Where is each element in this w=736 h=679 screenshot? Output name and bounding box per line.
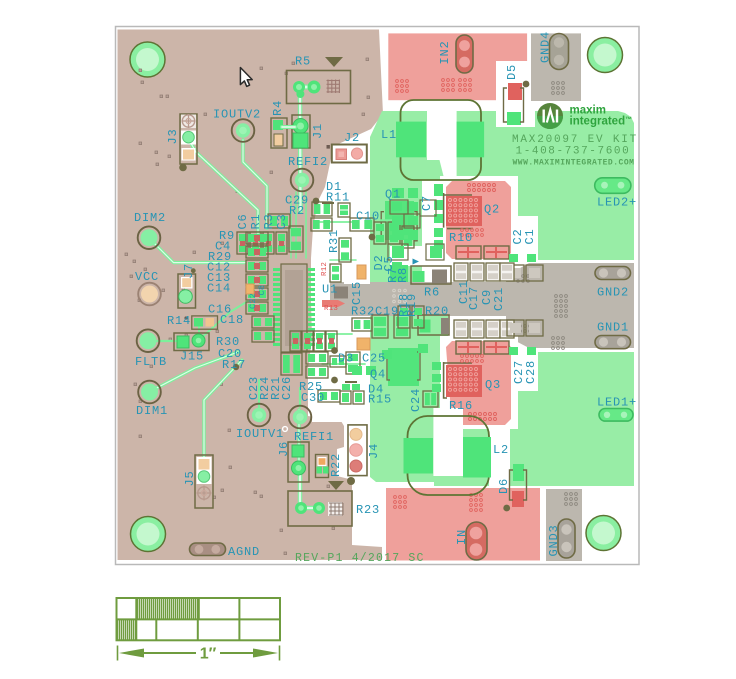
svg-text:J15: J15: [180, 350, 204, 364]
svg-text:L1: L1: [381, 128, 397, 142]
svg-text:R31: R31: [327, 229, 341, 253]
svg-text:GND3: GND3: [547, 524, 561, 556]
svg-text:C10: C10: [356, 210, 380, 224]
svg-text:C28: C28: [524, 360, 538, 384]
svg-text:REFI1: REFI1: [294, 430, 334, 444]
svg-text:Q2: Q2: [484, 203, 500, 217]
svg-text:DIM2: DIM2: [134, 211, 166, 225]
svg-text:AGND: AGND: [228, 545, 260, 559]
svg-text:GND1: GND1: [597, 321, 629, 335]
svg-text:C1: C1: [523, 228, 537, 244]
svg-text:U1: U1: [322, 283, 338, 297]
svg-text:R15: R15: [368, 393, 392, 407]
svg-text:IOUTV2: IOUTV2: [213, 108, 261, 122]
svg-text:DIM1: DIM1: [136, 404, 168, 418]
svg-text:D6: D6: [497, 478, 511, 494]
svg-text:D5: D5: [505, 64, 519, 80]
svg-text:R10: R10: [449, 231, 473, 245]
svg-text:FLTB: FLTB: [135, 355, 167, 369]
svg-text:R3: R3: [262, 213, 276, 229]
svg-text:J2: J2: [344, 131, 360, 145]
svg-text:R16: R16: [449, 399, 473, 413]
svg-text:C24: C24: [409, 388, 423, 412]
svg-text:J1: J1: [311, 123, 325, 139]
svg-text:C18: C18: [220, 313, 244, 327]
svg-text:C17: C17: [467, 286, 481, 310]
svg-text:C26: C26: [280, 376, 294, 400]
svg-text:R13: R13: [324, 305, 338, 313]
svg-text:J6: J6: [277, 441, 291, 457]
svg-text:R17: R17: [222, 358, 246, 372]
svg-text:VCC: VCC: [135, 270, 159, 284]
svg-text:R32C19: R32C19: [351, 305, 399, 319]
svg-text:C15: C15: [350, 281, 364, 305]
svg-text:R5: R5: [295, 55, 311, 69]
svg-text:IOUTV1: IOUTV1: [236, 427, 284, 441]
svg-text:R23: R23: [356, 503, 380, 517]
svg-text:C21: C21: [492, 287, 506, 311]
svg-text:J5: J5: [183, 470, 197, 486]
svg-text:C8: C8: [257, 285, 267, 296]
svg-text:R2: R2: [289, 204, 305, 218]
svg-text:MAX20097 EV KIT: MAX20097 EV KIT: [512, 134, 638, 146]
svg-text:R1: R1: [249, 213, 263, 229]
svg-text:R20: R20: [425, 305, 449, 319]
svg-text:C14: C14: [207, 282, 231, 296]
svg-text:C30: C30: [301, 391, 325, 405]
svg-text:J7: J7: [182, 263, 196, 279]
svg-text:GND4: GND4: [539, 31, 553, 63]
svg-text:C6: C6: [236, 213, 250, 229]
svg-text:WWW.MAXIMINTEGRATED.COM: WWW.MAXIMINTEGRATED.COM: [513, 159, 635, 168]
svg-text:R19: R19: [405, 293, 419, 317]
svg-text:J4: J4: [367, 443, 381, 459]
svg-text:R12: R12: [321, 262, 329, 276]
svg-text:R14: R14: [167, 314, 191, 328]
svg-text:GND2: GND2: [597, 286, 629, 300]
svg-text:C7: C7: [420, 195, 434, 211]
svg-text:D3 C25: D3 C25: [338, 352, 386, 366]
svg-text:Q4: Q4: [370, 368, 386, 382]
svg-text:1-408-737-7600: 1-408-737-7600: [516, 145, 631, 157]
svg-text:R8: R8: [396, 267, 410, 283]
svg-text:C3: C3: [275, 213, 289, 229]
svg-text:Q3: Q3: [485, 378, 501, 392]
svg-text:R4: R4: [271, 100, 285, 116]
svg-text:R22: R22: [329, 453, 343, 477]
svg-text:IN2: IN2: [438, 40, 452, 64]
svg-text:IN: IN: [455, 529, 469, 545]
svg-text:Q1: Q1: [385, 188, 401, 202]
svg-text:1″: 1″: [200, 646, 217, 663]
svg-text:REFI2: REFI2: [288, 155, 328, 169]
svg-text:LED1+: LED1+: [597, 396, 637, 410]
svg-text:integrated™: integrated™: [570, 116, 633, 128]
svg-text:LED2+: LED2+: [597, 196, 637, 210]
svg-text:L2: L2: [493, 443, 509, 457]
svg-text:J3: J3: [166, 128, 180, 144]
svg-text:REV-P1 4/2017 SC: REV-P1 4/2017 SC: [295, 552, 425, 565]
svg-text:R6: R6: [424, 286, 440, 300]
